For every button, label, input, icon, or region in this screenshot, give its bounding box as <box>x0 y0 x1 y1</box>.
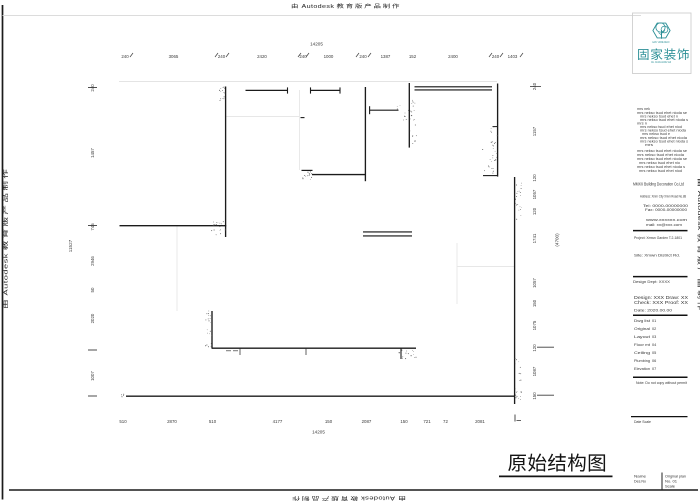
svg-text:EASY HOME DECO: EASY HOME DECO <box>653 40 670 44</box>
svg-text:1157: 1157 <box>532 126 537 136</box>
svg-text:240: 240 <box>359 54 367 59</box>
svg-text:Name: Name <box>634 475 646 479</box>
svg-text:05: 05 <box>652 351 656 355</box>
svg-text:240: 240 <box>218 54 226 59</box>
svg-text:745: 745 <box>90 223 95 231</box>
svg-text:Project: Xmwn Garden T.2-1801: Project: Xmwn Garden T.2-1801 <box>634 235 683 240</box>
svg-text:Des.No: Des.No <box>634 480 646 484</box>
svg-text:2420: 2420 <box>257 54 267 59</box>
svg-text:01: 01 <box>652 319 656 323</box>
svg-text:mrs nekso tsud ehet nioda s: mrs nekso tsud ehet nioda s <box>640 118 688 122</box>
svg-text:Original: Original <box>634 327 650 331</box>
svg-text:Fax: 0000-00000000: Fax: 0000-00000000 <box>645 208 687 212</box>
svg-text:Layout: Layout <box>634 335 651 339</box>
svg-text:120: 120 <box>532 174 537 182</box>
svg-text:Original plan: Original plan <box>665 475 686 479</box>
svg-text:1387: 1387 <box>381 54 391 59</box>
svg-text:72: 72 <box>443 419 448 424</box>
svg-text:06: 06 <box>652 359 656 363</box>
svg-text:4177: 4177 <box>273 419 283 424</box>
svg-text:mrs nekso tsud ehet niod: mrs nekso tsud ehet niod <box>639 169 682 173</box>
svg-text:07: 07 <box>652 367 656 371</box>
svg-text:2087: 2087 <box>362 419 372 424</box>
svg-text:240: 240 <box>299 54 307 59</box>
svg-text:510: 510 <box>119 419 127 424</box>
svg-text:150: 150 <box>325 419 333 424</box>
svg-text:Ceiling: Ceiling <box>634 351 650 355</box>
svg-text:Check: XXX Proof: XX: Check: XXX Proof: XX <box>634 300 688 305</box>
svg-text:240: 240 <box>492 54 500 59</box>
svg-text:721: 721 <box>423 419 431 424</box>
svg-text:04: 04 <box>652 343 656 347</box>
svg-text:2020: 2020 <box>90 313 95 323</box>
svg-text:mail: xx@xxx.com: mail: xx@xxx.com <box>646 223 682 227</box>
svg-text:02: 02 <box>652 327 656 331</box>
svg-text:120: 120 <box>532 344 537 352</box>
svg-text:Dwg list: Dwg list <box>634 319 651 323</box>
svg-text:Plumbing: Plumbing <box>634 359 650 363</box>
svg-text:510: 510 <box>209 419 217 424</box>
svg-text:mrs: mrs <box>645 143 653 147</box>
svg-text:1057: 1057 <box>532 189 537 199</box>
svg-text:50: 50 <box>90 287 95 292</box>
svg-text:1087: 1087 <box>532 366 537 376</box>
svg-text:(4700): (4700) <box>555 233 560 247</box>
svg-text:1403: 1403 <box>508 54 518 59</box>
svg-text:2870: 2870 <box>167 419 177 424</box>
svg-text:3065: 3065 <box>169 54 179 59</box>
svg-text:2081: 2081 <box>475 419 485 424</box>
svg-text:Date Scale: Date Scale <box>634 420 651 424</box>
svg-text:2400: 2400 <box>448 54 458 59</box>
svg-text:Floor mt: Floor mt <box>634 343 651 347</box>
svg-text:150: 150 <box>400 419 408 424</box>
svg-text:03: 03 <box>652 335 656 339</box>
svg-text:240: 240 <box>121 54 129 59</box>
svg-text:14205: 14205 <box>312 430 325 435</box>
svg-text:Elevation: Elevation <box>634 367 650 371</box>
svg-text:1075: 1075 <box>532 320 537 330</box>
svg-text:Site: Xmwn District Rd.: Site: Xmwn District Rd. <box>634 253 680 258</box>
svg-text:120: 120 <box>532 207 537 215</box>
svg-text:1457: 1457 <box>90 148 95 158</box>
svg-text:www.xxxxxx.com: www.xxxxxx.com <box>646 218 687 222</box>
svg-text:GU JIA ZHUANG SHI: GU JIA ZHUANG SHI <box>651 60 671 64</box>
svg-text:MMXX Building Decoration Co.Lt: MMXX Building Decoration Co.Ltd <box>633 182 684 187</box>
svg-text:1057: 1057 <box>532 278 537 288</box>
svg-text:Note: Do not copy without perm: Note: Do not copy without permit <box>636 381 688 385</box>
svg-text:Date: 2020.00.00: Date: 2020.00.00 <box>634 309 672 313</box>
svg-text:152: 152 <box>409 54 417 59</box>
svg-text:150: 150 <box>532 392 537 400</box>
svg-text:1007: 1007 <box>90 371 95 381</box>
svg-text:2946: 2946 <box>90 256 95 266</box>
svg-text:Scale: Scale <box>665 485 675 489</box>
svg-text:Address: Xmm City Xmm Road No.: Address: Xmm City Xmm Road No.88 <box>640 195 686 199</box>
svg-text:Design Dept: XXXX: Design Dept: XXXX <box>633 279 670 284</box>
svg-text:11527: 11527 <box>68 239 73 252</box>
svg-text:150: 150 <box>532 299 537 307</box>
svg-text:No. 01: No. 01 <box>665 480 677 484</box>
svg-text:1000: 1000 <box>324 54 334 59</box>
svg-text:1741: 1741 <box>532 233 537 243</box>
svg-text:14205: 14205 <box>310 42 323 47</box>
